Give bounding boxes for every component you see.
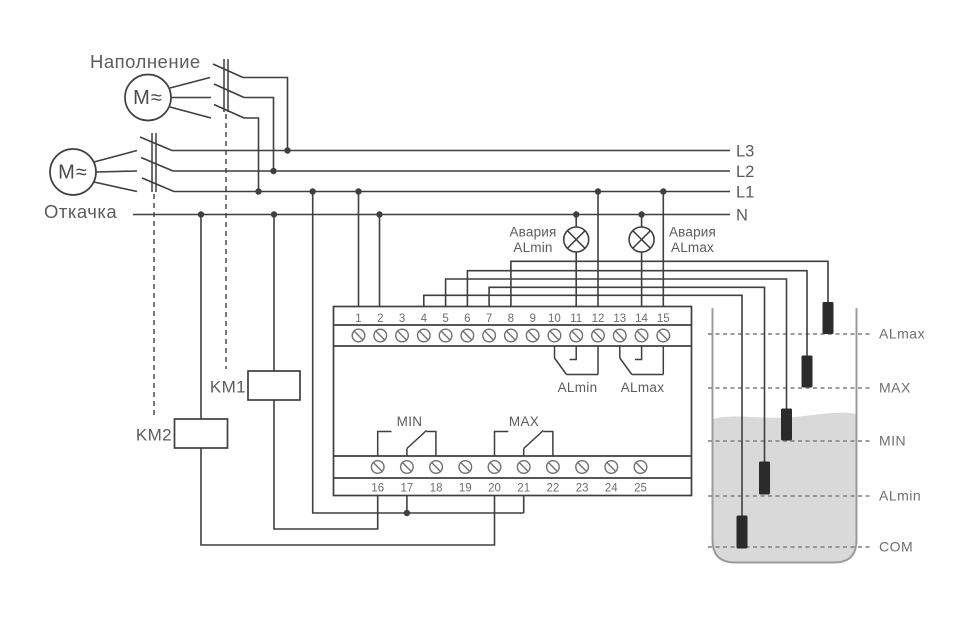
terminal-number: 20: [488, 483, 501, 495]
screw-terminal-icon: [459, 461, 472, 474]
terminal-number: 4: [421, 313, 428, 325]
level-label-com: COM: [879, 539, 913, 555]
probe-com: [737, 516, 748, 549]
screw-terminal-icon: [461, 329, 474, 342]
screw-terminal-icon: [570, 329, 583, 342]
terminal-number: 8: [508, 313, 514, 325]
screw-terminal-icon: [488, 461, 501, 474]
terminal-number: 1: [355, 313, 361, 325]
alarm-max-label-1: Авария: [669, 225, 716, 240]
screw-terminal-icon: [576, 461, 589, 474]
terminal-number: 14: [635, 313, 648, 325]
screw-terminal-icon: [352, 329, 365, 342]
terminal-number: 13: [613, 313, 626, 325]
km1-coil: [248, 371, 300, 400]
terminal-number: 2: [377, 313, 383, 325]
screw-terminal-icon: [547, 461, 560, 474]
relay-almax-label: ALmax: [621, 380, 665, 395]
screw-terminal-icon: [517, 461, 530, 474]
probe-min: [781, 409, 792, 441]
bus-label-n: N: [736, 207, 748, 225]
motor-drain-label: Откачка: [44, 201, 117, 222]
level-label-almax: ALmax: [879, 326, 925, 342]
screw-terminal-icon: [505, 329, 518, 342]
level-label-min: MIN: [879, 433, 906, 449]
probe-almin: [759, 462, 770, 495]
relay-contact-almin: ALmin: [555, 346, 599, 395]
motor-fill-label: Наполнение: [90, 51, 201, 72]
bus-label-l1: L1: [736, 184, 754, 202]
motor-drain-symbol: M≈: [58, 162, 88, 184]
alarm-min-label-1: Авария: [509, 225, 556, 240]
relay-contact-almax: ALmax: [620, 346, 664, 395]
motor-fill: Наполнение M≈: [90, 51, 288, 369]
km1-label: KM1: [210, 378, 246, 397]
terminal-number: 11: [570, 313, 582, 325]
level-label-max: MAX: [879, 380, 911, 396]
km2-label: KM2: [136, 426, 172, 445]
probe-max: [802, 356, 813, 388]
screw-terminal-icon: [592, 329, 605, 342]
terminal-number: 12: [592, 313, 605, 325]
terminal-number: 6: [464, 313, 470, 325]
bus-label-l2: L2: [736, 163, 754, 181]
alarm-max-label-2: ALmax: [671, 240, 714, 255]
motor-fill-symbol: M≈: [133, 87, 163, 109]
motor-drain: M≈ Откачка: [44, 133, 174, 417]
terminal-number: 9: [529, 313, 535, 325]
screw-terminal-icon: [401, 461, 414, 474]
screw-terminal-icon: [605, 461, 618, 474]
screw-terminal-icon: [418, 329, 431, 342]
terminal-number: 5: [442, 313, 448, 325]
screw-terminal-icon: [613, 329, 626, 342]
screw-terminal-icon: [657, 329, 670, 342]
terminal-number: 7: [486, 313, 492, 325]
terminal-number: 21: [517, 483, 530, 495]
terminal-number: 17: [401, 483, 414, 495]
contactor-km1-contacts: [213, 59, 244, 118]
wire-almax: [511, 261, 828, 306]
wire-km1-to-t16: [274, 400, 378, 529]
screw-terminal-icon: [635, 329, 648, 342]
km2-coil: [175, 419, 228, 448]
alarm-min-label-2: ALmin: [513, 240, 552, 255]
relay-min-label: MIN: [397, 414, 423, 429]
level-relay-wiring-diagram: ALmax MAX MIN ALmin COM L3 L2 L1 N Напол…: [0, 0, 970, 617]
terminal-number: 15: [657, 313, 670, 325]
terminals: 1234567891011121314151617181920212223242…: [352, 313, 669, 495]
screw-terminal-icon: [526, 329, 539, 342]
relay-contact-min: MIN: [378, 414, 436, 456]
screw-terminal-icon: [483, 329, 496, 342]
terminal-number: 10: [548, 313, 561, 325]
bus-label-l3: L3: [736, 143, 754, 161]
wiring-diagram-page: ALmax MAX MIN ALmin COM L3 L2 L1 N Напол…: [0, 0, 970, 617]
screw-terminal-icon: [371, 461, 384, 474]
level-label-almin: ALmin: [879, 488, 921, 504]
terminal-number: 19: [459, 483, 472, 495]
screw-terminal-icon: [548, 329, 561, 342]
contactor-km2-contacts: [140, 133, 174, 192]
terminal-number: 25: [634, 483, 647, 495]
relay-max-label: MAX: [509, 414, 539, 429]
wire-min: [446, 279, 787, 409]
screw-terminal-icon: [634, 461, 647, 474]
screw-terminal-icon: [374, 329, 387, 342]
relay-contact-max: MAX: [495, 414, 553, 456]
screw-terminal-icon: [439, 329, 452, 342]
terminal-number: 24: [605, 483, 618, 495]
junction-dots: [198, 147, 667, 516]
probe-almax: [823, 302, 834, 334]
terminal-number: 23: [576, 483, 589, 495]
terminal-number: 22: [547, 483, 560, 495]
wire-km2-to-t20: [201, 448, 495, 545]
terminal-number: 16: [371, 483, 384, 495]
relay-device: 1234567891011121314151617181920212223242…: [334, 307, 692, 496]
screw-terminal-icon: [430, 461, 443, 474]
screw-terminal-icon: [396, 329, 409, 342]
terminal-number: 3: [399, 313, 405, 325]
terminal-number: 18: [430, 483, 443, 495]
relay-almin-label: ALmin: [558, 380, 598, 395]
